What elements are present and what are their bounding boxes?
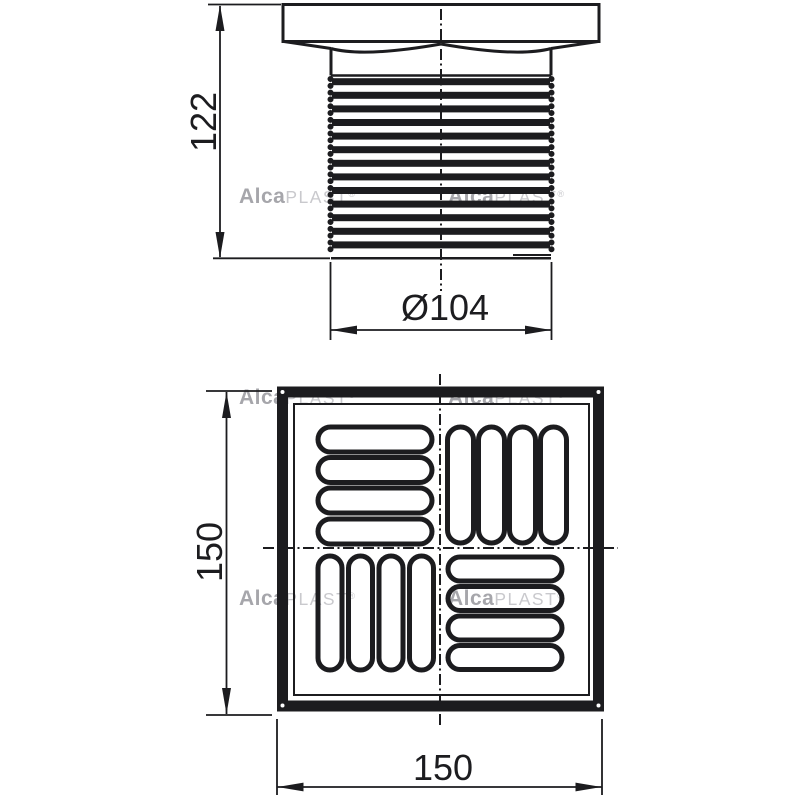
grate-center-lines bbox=[263, 374, 618, 727]
cad-drawing: 122 Ø104 bbox=[0, 0, 800, 800]
dimension-150-left: 150 bbox=[189, 391, 272, 715]
grate-slots-bottom-left bbox=[318, 556, 434, 670]
grate-slots-top-left bbox=[318, 427, 432, 544]
top-view-drawing: 150 150 bbox=[189, 374, 618, 795]
dimension-label-diameter: Ø104 bbox=[401, 287, 489, 328]
grate-slots-bottom-right bbox=[448, 557, 562, 670]
dimension-150-bottom: 150 bbox=[277, 719, 602, 795]
dimension-label-height: 122 bbox=[183, 92, 224, 152]
dimension-label-grate-width: 150 bbox=[413, 747, 473, 788]
dimension-label-grate-height: 150 bbox=[189, 522, 230, 582]
grate-slots-top-right bbox=[448, 427, 567, 543]
technical-drawing-canvas: AlcaPLAST® AlcaPLAST® AlcaPLAST® AlcaPLA… bbox=[0, 0, 800, 800]
side-view-drawing: 122 Ø104 bbox=[183, 5, 599, 341]
